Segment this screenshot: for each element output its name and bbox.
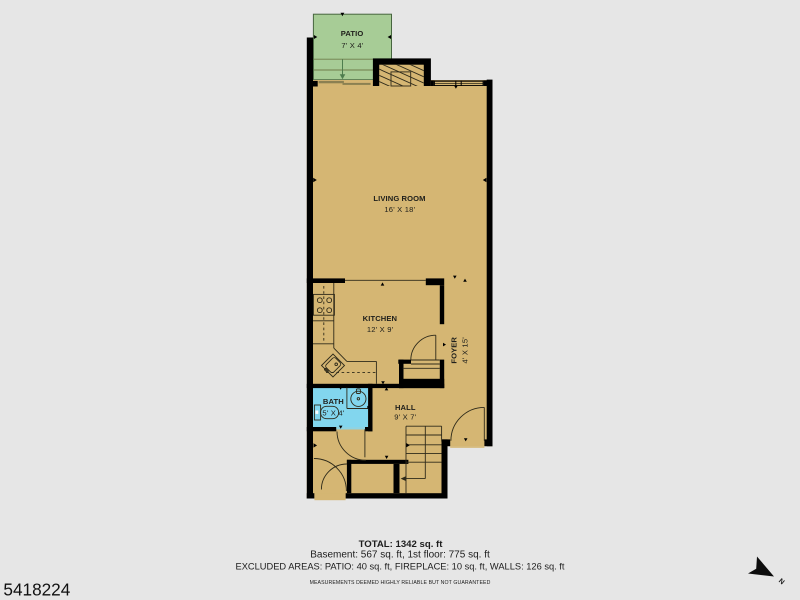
svg-text:HALL: HALL bbox=[395, 403, 416, 412]
svg-text:9' X 7': 9' X 7' bbox=[394, 412, 416, 421]
svg-text:Basement: 567 sq. ft, 1st floo: Basement: 567 sq. ft, 1st floor: 775 sq.… bbox=[310, 550, 490, 561]
svg-text:KITCHEN: KITCHEN bbox=[363, 314, 397, 323]
svg-text:EXCLUDED AREAS: PATIO: 40 sq.: EXCLUDED AREAS: PATIO: 40 sq. ft, FIREPL… bbox=[236, 562, 565, 572]
svg-text:LIVING ROOM: LIVING ROOM bbox=[373, 194, 425, 203]
svg-text:TOTAL: 1342 sq. ft: TOTAL: 1342 sq. ft bbox=[359, 539, 444, 550]
svg-text:16' X 18': 16' X 18' bbox=[384, 205, 415, 214]
svg-text:MEASUREMENTS DEEMED HIGHLY REL: MEASUREMENTS DEEMED HIGHLY RELIABLE BUT … bbox=[310, 580, 491, 586]
svg-text:5' X 4': 5' X 4' bbox=[322, 409, 344, 418]
svg-text:PATIO: PATIO bbox=[341, 29, 364, 38]
svg-text:BATH: BATH bbox=[323, 397, 344, 406]
svg-text:7' X 4': 7' X 4' bbox=[341, 41, 363, 50]
svg-text:FOYER: FOYER bbox=[450, 337, 459, 364]
svg-text:12' X 9': 12' X 9' bbox=[367, 325, 394, 334]
svg-text:5418224: 5418224 bbox=[3, 579, 70, 599]
svg-text:4' X 15': 4' X 15' bbox=[461, 337, 470, 364]
